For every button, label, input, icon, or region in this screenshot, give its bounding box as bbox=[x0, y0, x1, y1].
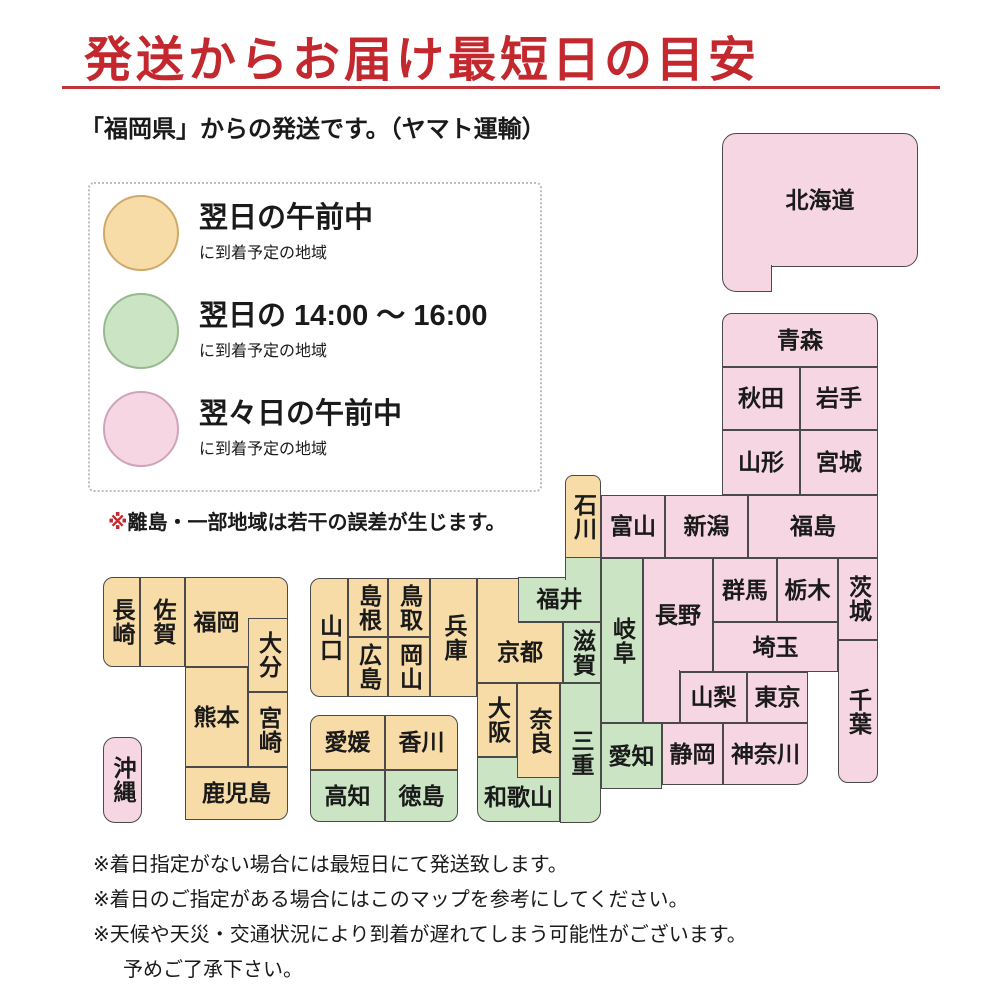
prefecture-kagawa bbox=[385, 715, 458, 770]
prefecture-kochi bbox=[310, 770, 385, 822]
prefecture-tochigi bbox=[777, 558, 838, 622]
prefecture-shimane bbox=[348, 578, 388, 637]
prefecture-ishikawa bbox=[565, 475, 601, 558]
prefecture-aomori bbox=[722, 313, 878, 367]
prefecture-ibaraki bbox=[838, 558, 878, 640]
footnotes: ※着日指定がない場合には最短日にて発送致します。 ※着日のご指定がある場合にはこ… bbox=[93, 848, 747, 988]
prefecture-kanagawa bbox=[723, 723, 808, 785]
prefecture-saitama bbox=[713, 622, 838, 672]
prefecture-miyagi bbox=[800, 430, 878, 495]
prefecture-yamanashi bbox=[680, 672, 747, 723]
prefecture-tokyo bbox=[747, 672, 808, 723]
prefecture-toyama bbox=[601, 495, 665, 558]
prefecture-hokkaido bbox=[722, 133, 918, 267]
prefecture-chiba bbox=[838, 640, 878, 783]
prefecture-fukui bbox=[565, 558, 601, 580]
prefecture-miyazaki bbox=[248, 692, 288, 767]
footnote-line: ※着日指定がない場合には最短日にて発送致します。 bbox=[93, 848, 747, 883]
prefecture-yamaguchi bbox=[310, 578, 348, 697]
prefecture-osaka bbox=[477, 683, 517, 757]
prefecture-fukui bbox=[518, 577, 601, 622]
prefecture-aichi bbox=[601, 723, 662, 789]
prefecture-yamagata bbox=[722, 430, 800, 495]
prefecture-ehime bbox=[310, 715, 385, 770]
prefecture-niigata bbox=[665, 495, 748, 558]
prefecture-gunma bbox=[713, 558, 777, 622]
prefecture-tottori bbox=[388, 578, 430, 637]
prefecture-kyoto bbox=[477, 622, 563, 683]
prefecture-hokkaido bbox=[722, 265, 772, 292]
prefecture-okinawa bbox=[103, 737, 142, 823]
prefecture-kagoshima bbox=[185, 767, 288, 820]
prefecture-akita bbox=[722, 367, 800, 430]
prefecture-tokushima bbox=[385, 770, 458, 822]
prefecture-fukushima bbox=[748, 495, 878, 558]
prefecture-kumamoto bbox=[185, 667, 248, 767]
prefecture-mie bbox=[560, 683, 601, 823]
prefecture-oita bbox=[248, 618, 288, 692]
prefecture-kyoto bbox=[477, 578, 518, 624]
prefecture-shizuoka bbox=[662, 723, 723, 785]
prefecture-nara bbox=[517, 683, 560, 778]
footnote-line: ※着日のご指定がある場合にはこのマップを参考にしてください。 bbox=[93, 883, 747, 918]
prefecture-shiga bbox=[563, 622, 601, 683]
delivery-estimate-infographic: 発送からお届け最短日の目安 「福岡県」からの発送です。（ヤマト運輸） 翌日の午前… bbox=[0, 0, 1000, 1000]
footnote-line: 予めご了承下さい。 bbox=[93, 953, 747, 988]
prefecture-okayama bbox=[388, 637, 430, 697]
prefecture-iwate bbox=[800, 367, 878, 430]
prefecture-nagasaki bbox=[103, 577, 140, 667]
prefecture-nagano bbox=[643, 558, 713, 672]
footnote-line: ※天候や天災・交通状況により到着が遅れてしまう可能性がございます。 bbox=[93, 918, 747, 953]
prefecture-saga bbox=[140, 577, 185, 667]
prefecture-nagano bbox=[643, 670, 680, 723]
prefecture-hyogo bbox=[430, 578, 477, 697]
prefecture-hiroshima bbox=[348, 637, 388, 697]
prefecture-gifu bbox=[601, 558, 643, 723]
